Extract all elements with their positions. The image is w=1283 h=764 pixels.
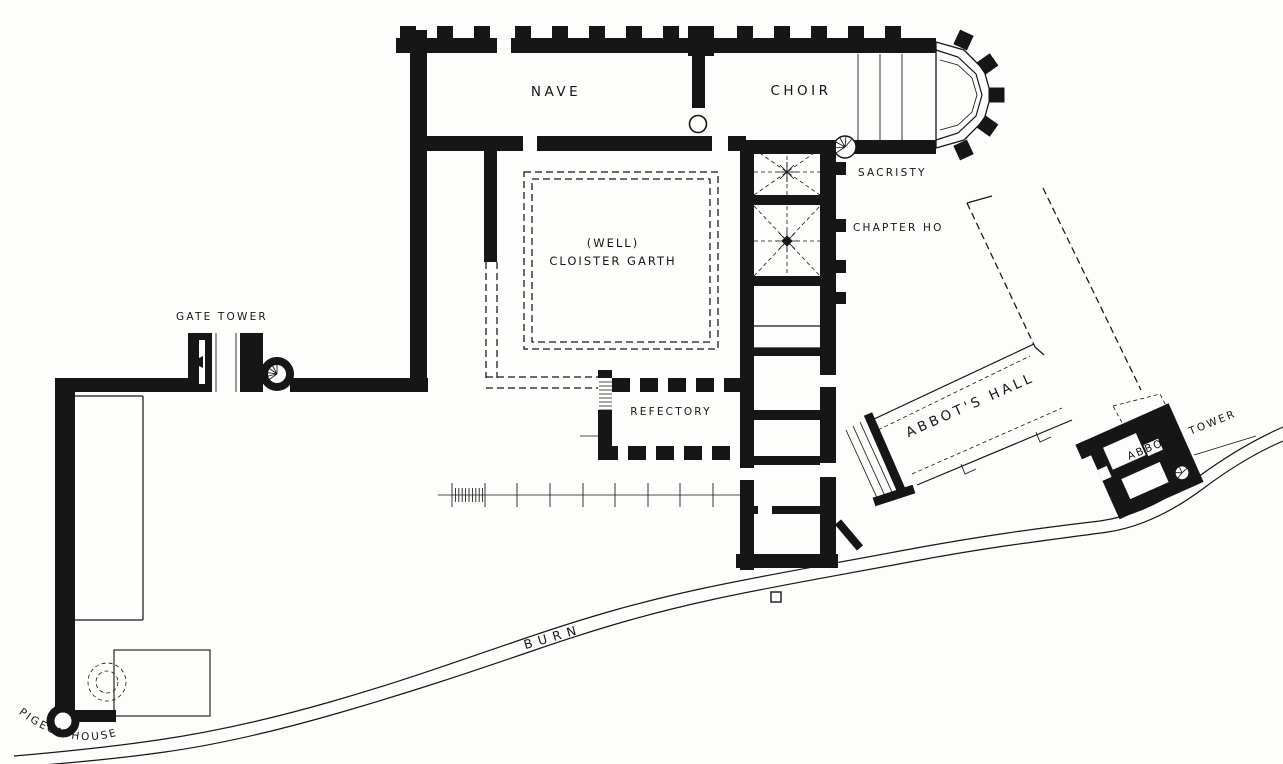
west-precinct-wall	[55, 378, 75, 712]
presbytery-steps	[858, 54, 902, 140]
buttress	[589, 26, 605, 40]
pulpitum-wall	[692, 53, 705, 108]
walk-door-gap	[712, 136, 728, 151]
east-range-east-wall	[820, 140, 836, 568]
stair-head-wall	[598, 370, 612, 378]
wall-corner	[402, 378, 428, 392]
west-range-east-wall	[484, 150, 497, 262]
window-gap	[646, 446, 656, 460]
chapter-house-vault	[754, 206, 820, 276]
hall-porch-wall	[874, 489, 914, 502]
well-label: (WELL)	[587, 236, 639, 250]
window-gap	[714, 378, 724, 392]
scale-bar	[438, 483, 740, 507]
buttress	[737, 26, 753, 40]
east-range-south-wall	[736, 554, 838, 568]
south-walk-dashed-wall	[486, 377, 598, 388]
north-door-gap	[497, 38, 511, 53]
burn-upper-bank	[14, 427, 1283, 756]
buttress	[811, 26, 827, 40]
day-stair-steps	[599, 382, 612, 410]
abbots-hall: ABBOT'S HALL	[838, 344, 1072, 548]
east-door-gap	[820, 463, 836, 477]
sacristy-vault	[754, 149, 820, 195]
conjectural-corners	[967, 196, 1044, 355]
cross-wall	[754, 410, 820, 420]
burn-label: BURN	[522, 621, 584, 652]
window-gap	[686, 378, 696, 392]
pigeon-house-enclosure	[114, 650, 210, 716]
sacristy-label: SACRISTY	[858, 167, 927, 179]
buttress	[885, 26, 901, 40]
hall-end-wall	[868, 414, 902, 492]
cross-wall	[754, 348, 820, 356]
wall-to-burn	[838, 522, 860, 548]
north-buttresses	[400, 26, 901, 40]
refectory-label: REFECTORY	[630, 406, 711, 418]
screen-pier	[690, 116, 707, 133]
apse	[936, 30, 1005, 161]
gate-tower: GATE TOWER	[176, 311, 290, 392]
abbots-tower: ABBOT'S TOWER	[1075, 394, 1256, 523]
pigeon-house-inner-circle	[96, 671, 118, 693]
buttress	[552, 26, 568, 40]
cloister: (WELL) CLOISTER GARTH	[484, 150, 718, 388]
gate-tower-label: GATE TOWER	[176, 311, 268, 323]
precinct-walls: PIGEON HOUSE	[17, 150, 428, 743]
cross-wall	[754, 276, 820, 286]
cross-wall	[754, 456, 820, 465]
buttress	[836, 292, 846, 304]
buttress	[836, 162, 846, 175]
buttress	[836, 260, 846, 273]
buttress	[626, 26, 642, 40]
window-gap	[730, 446, 740, 460]
church: NAVE CHOIR	[396, 26, 1005, 160]
window-gap	[702, 446, 712, 460]
window-gap	[618, 446, 628, 460]
burn-stream: BURN	[4, 427, 1283, 764]
west-walk-dashed-wall	[486, 262, 497, 378]
west-front-wall	[410, 30, 427, 152]
east-range-west-wall	[740, 140, 754, 570]
hall-se-wall	[917, 420, 1072, 485]
buttress	[437, 26, 453, 40]
buttress	[474, 26, 490, 40]
refectory: REFECTORY	[580, 370, 754, 460]
buttress	[848, 26, 864, 40]
east-range: SACRISTY CHAPTER HO	[736, 140, 944, 570]
church-north-wall	[396, 38, 936, 53]
vault-boss-rays	[777, 162, 797, 182]
apse-outer-wall	[936, 42, 991, 148]
rood-stair-turret	[688, 26, 714, 56]
choir-label: CHOIR	[770, 83, 831, 99]
east-door-gap	[820, 375, 836, 387]
window-gap	[674, 446, 684, 460]
tower-body-group	[1075, 403, 1203, 523]
conjectural-wall-b	[1043, 188, 1141, 390]
chapter-house-label: CHAPTER HO	[853, 222, 944, 234]
conjectural-range	[967, 188, 1141, 390]
cloister-walk-door	[740, 468, 754, 480]
abbots-hall-label: ABBOT'S HALL	[903, 370, 1037, 441]
west-range-west-wall	[410, 150, 427, 385]
cloister-door-gap	[523, 136, 537, 151]
buttress	[774, 26, 790, 40]
north-precinct-wall-east	[290, 378, 412, 392]
floor-plan-figure: BURN	[0, 0, 1283, 764]
nave-label: NAVE	[531, 84, 581, 100]
window-gap	[630, 378, 640, 392]
buttress	[836, 219, 846, 232]
buttress	[663, 26, 679, 40]
refectory-west-wall	[598, 410, 612, 460]
apse-buttress	[989, 88, 1005, 103]
hall-door-jogs	[961, 432, 1051, 474]
slype-passage-walls	[754, 326, 820, 348]
cross-wall	[754, 195, 820, 205]
west-enclosure-outline	[75, 396, 143, 620]
tower-body	[1085, 403, 1204, 519]
window-gap	[658, 378, 668, 392]
buttress	[515, 26, 531, 40]
cloister-garth-label: CLOISTER GARTH	[549, 254, 676, 268]
pigeon-house-outer-circle	[88, 663, 126, 701]
nave-south-wall	[410, 136, 746, 151]
well-head-marker	[771, 592, 781, 602]
door-gap	[758, 506, 772, 514]
conjectural-wall-a	[967, 203, 1035, 347]
floor-plan-page: BURN	[0, 0, 1283, 764]
